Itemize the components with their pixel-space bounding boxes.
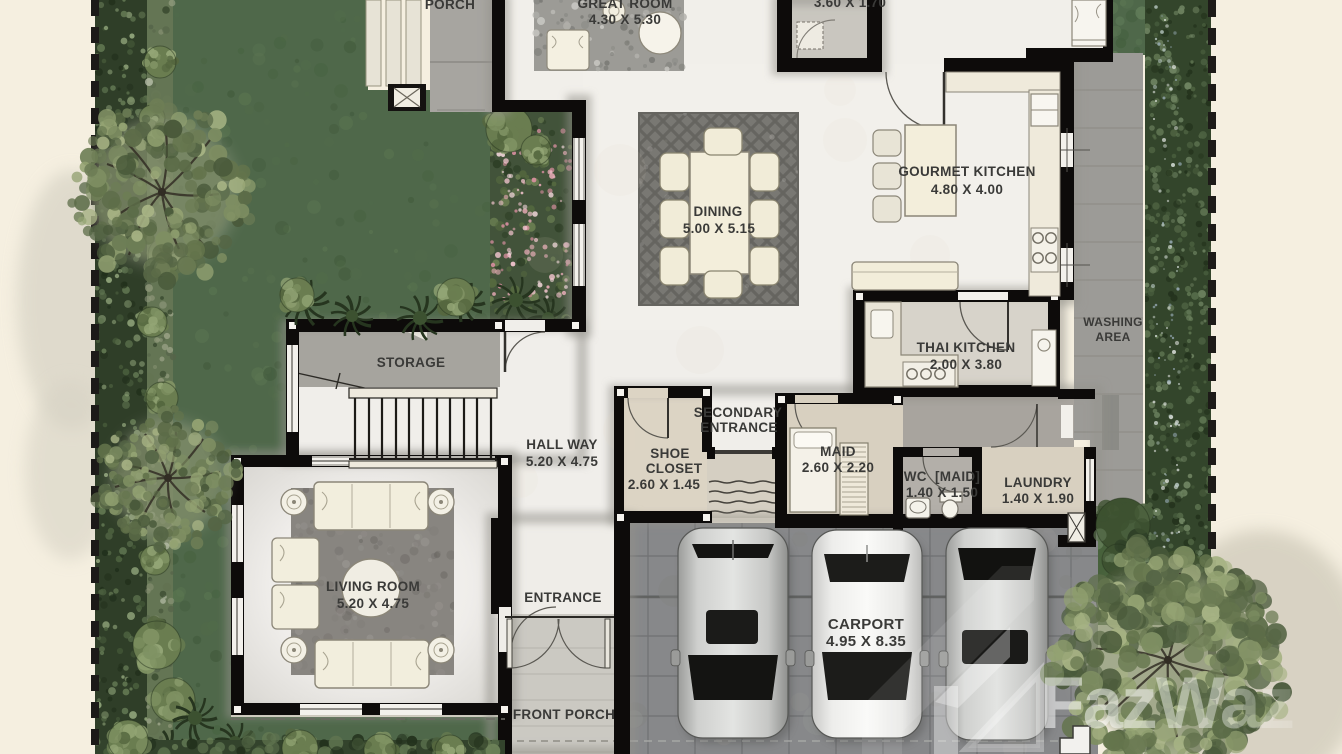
svg-text:CLOSET: CLOSET xyxy=(646,461,703,476)
svg-text:MAID: MAID xyxy=(820,444,856,459)
svg-text:4.95 X 8.35: 4.95 X 8.35 xyxy=(826,633,906,650)
svg-text:2.60 X 1.45: 2.60 X 1.45 xyxy=(628,477,701,492)
svg-text:THAI KITCHEN: THAI KITCHEN xyxy=(917,340,1016,355)
svg-text:5.00 X 5.15: 5.00 X 5.15 xyxy=(683,221,756,236)
svg-text:STORAGE: STORAGE xyxy=(377,355,446,370)
svg-text:2.00 X 3.80: 2.00 X 3.80 xyxy=(930,357,1002,372)
svg-text:FazWaz: FazWaz xyxy=(1040,663,1293,744)
svg-text:LIVING ROOM: LIVING ROOM xyxy=(326,579,420,594)
svg-text:SHOE: SHOE xyxy=(650,446,689,461)
svg-text:GREAT ROOM: GREAT ROOM xyxy=(578,0,673,11)
svg-text:GOURMET KITCHEN: GOURMET KITCHEN xyxy=(898,164,1035,179)
svg-text:WASHING: WASHING xyxy=(1083,315,1142,329)
svg-text:FRONT PORCH: FRONT PORCH xyxy=(513,707,615,722)
svg-text:4.80 X 4.00: 4.80 X 4.00 xyxy=(931,182,1003,197)
svg-text:CARPORT: CARPORT xyxy=(828,616,904,633)
svg-text:WC [MAID]: WC [MAID] xyxy=(904,469,980,484)
svg-text:AREA: AREA xyxy=(1095,330,1130,344)
svg-text:5.20 X 4.75: 5.20 X 4.75 xyxy=(337,596,410,611)
svg-text:5.20 X 4.75: 5.20 X 4.75 xyxy=(526,454,599,469)
svg-text:ENTRANCE: ENTRANCE xyxy=(524,590,601,605)
svg-text:HALL WAY: HALL WAY xyxy=(526,437,597,452)
svg-text:SECONDARY: SECONDARY xyxy=(694,405,782,420)
svg-text:DINING: DINING xyxy=(693,204,742,219)
svg-text:PORCH: PORCH xyxy=(425,0,475,12)
svg-text:ENTRANCE: ENTRANCE xyxy=(700,420,777,435)
svg-text:1.40 X 1.50: 1.40 X 1.50 xyxy=(906,485,978,500)
svg-text:3.60 X 1.70: 3.60 X 1.70 xyxy=(814,0,886,10)
svg-text:1.40 X 1.90: 1.40 X 1.90 xyxy=(1002,491,1074,506)
svg-text:2.60 X 2.20: 2.60 X 2.20 xyxy=(802,460,874,475)
svg-text:4.30 X 5.30: 4.30 X 5.30 xyxy=(589,12,661,27)
svg-text:LAUNDRY: LAUNDRY xyxy=(1004,475,1072,490)
